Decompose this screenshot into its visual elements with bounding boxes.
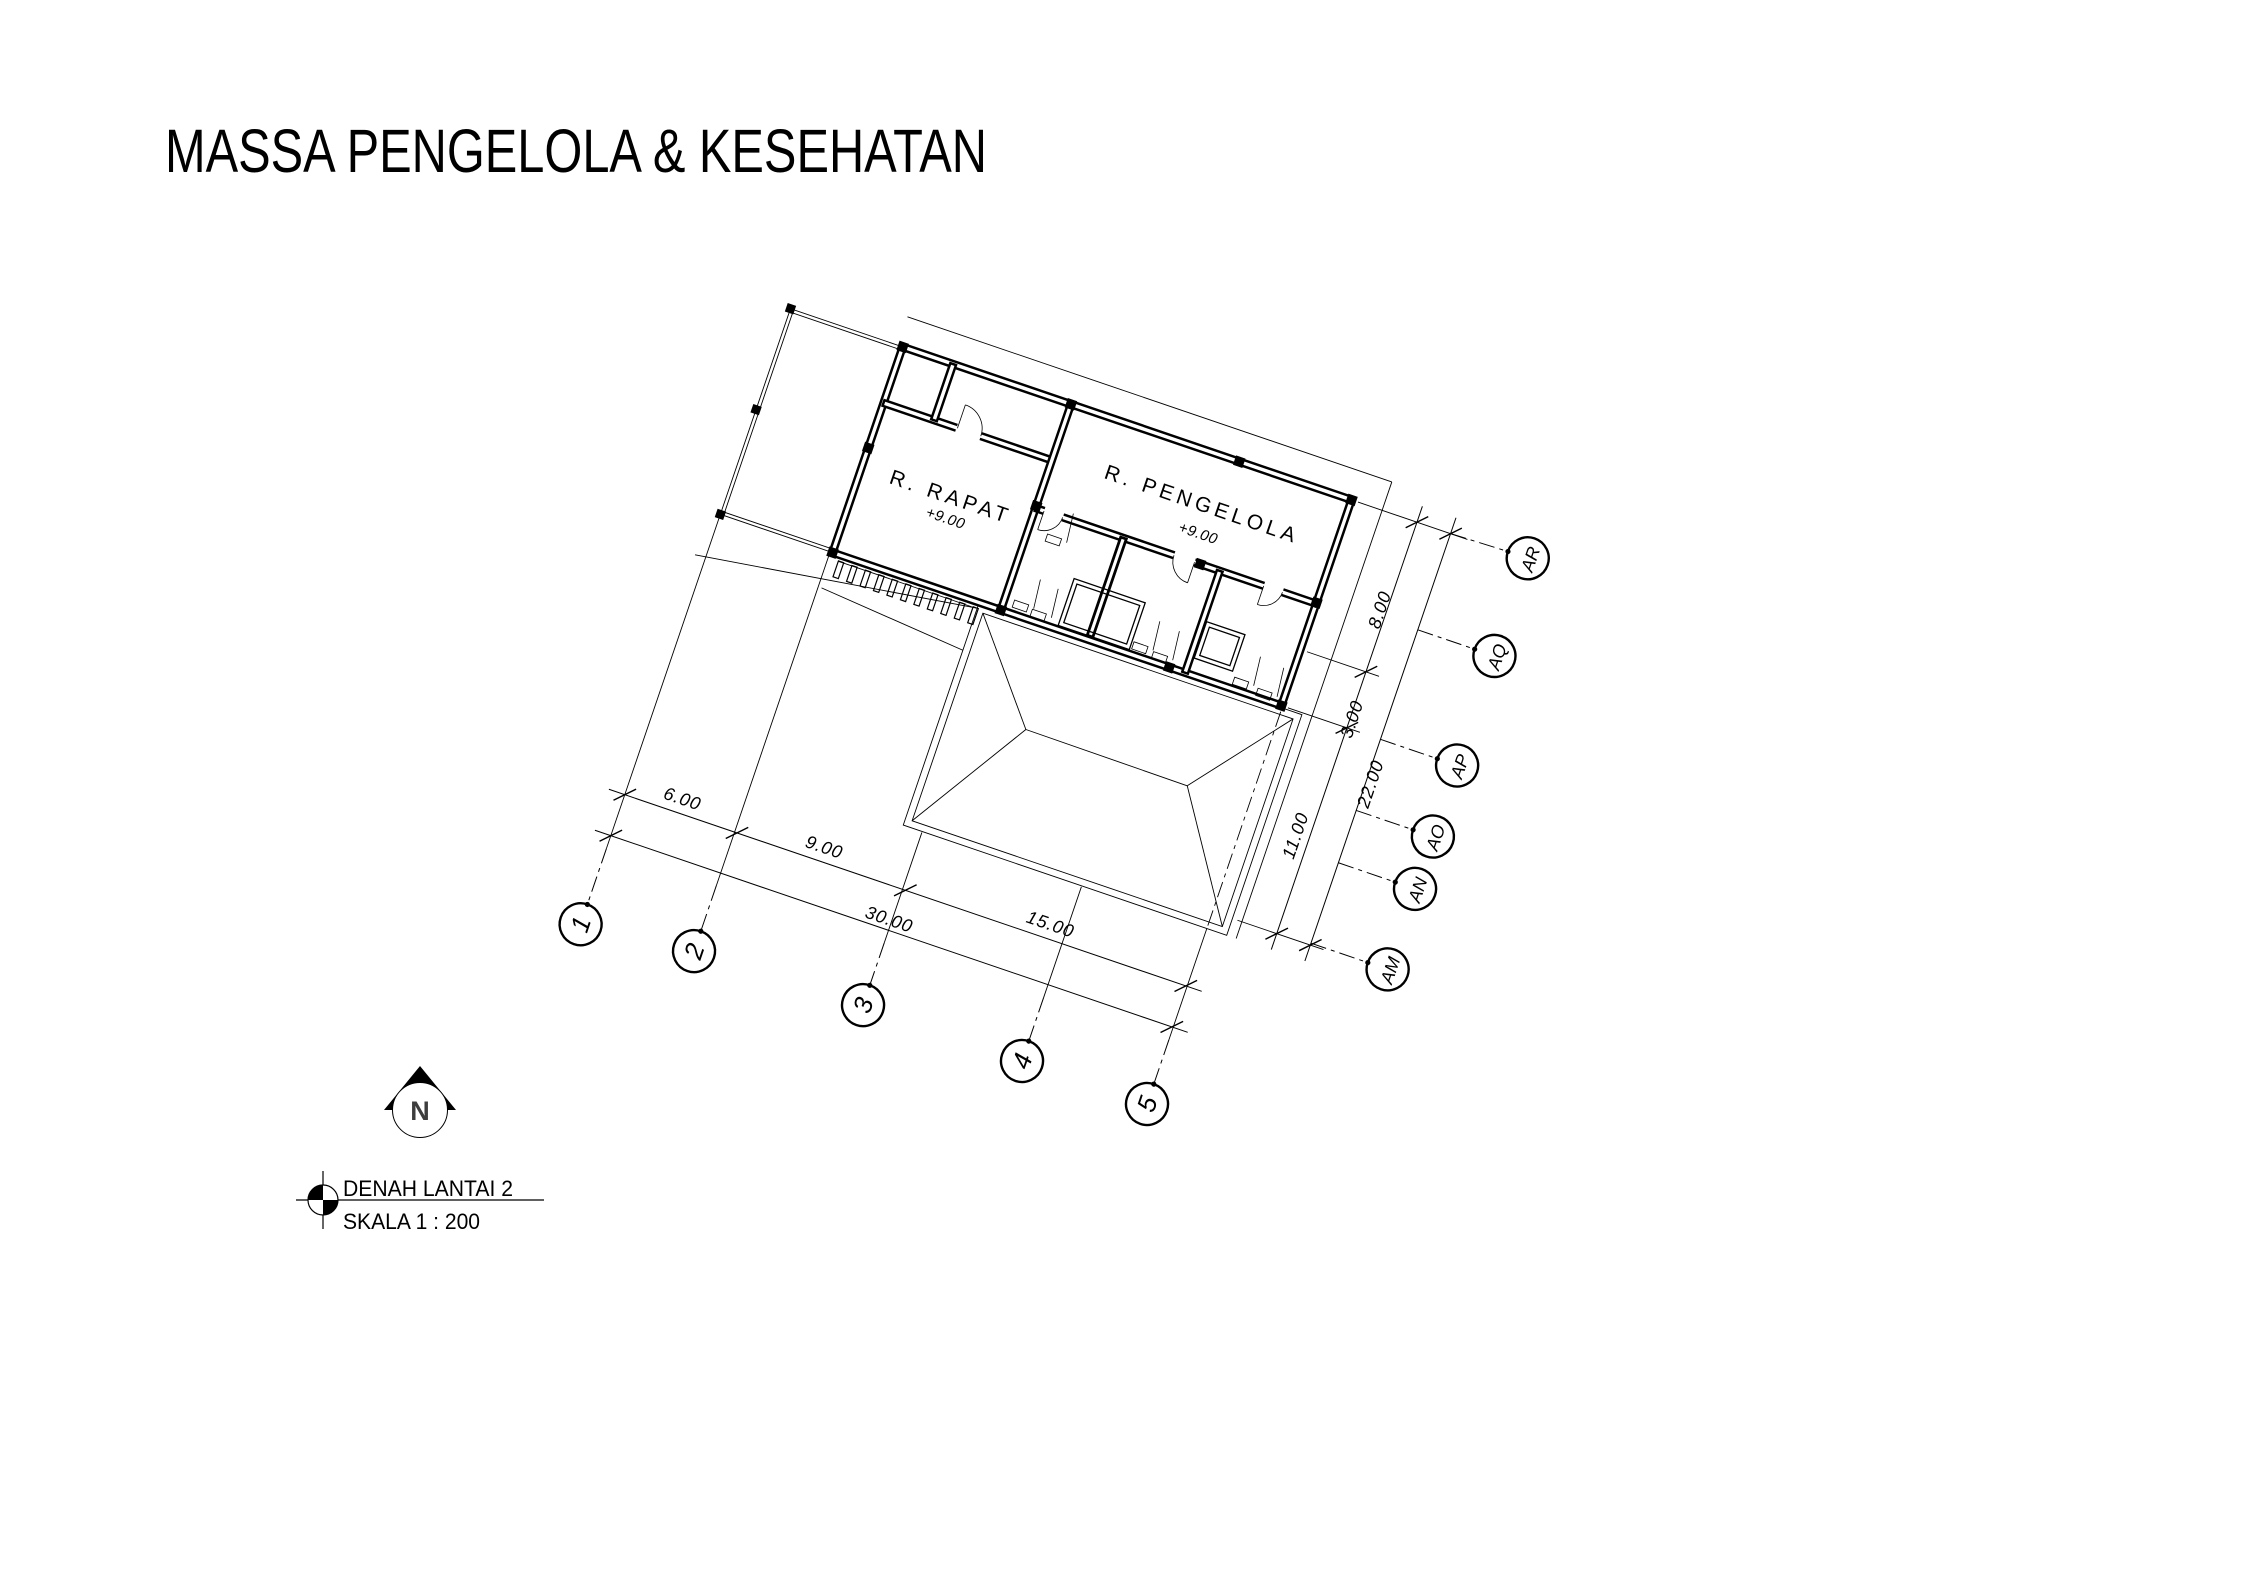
svg-text:SKALA 1 : 200: SKALA 1 : 200: [343, 1209, 480, 1234]
svg-text:N: N: [410, 1096, 430, 1126]
svg-text:MASSA PENGELOLA & KESEHATAN: MASSA PENGELOLA & KESEHATAN: [165, 117, 987, 185]
svg-text:DENAH LANTAI 2: DENAH LANTAI 2: [343, 1176, 513, 1201]
